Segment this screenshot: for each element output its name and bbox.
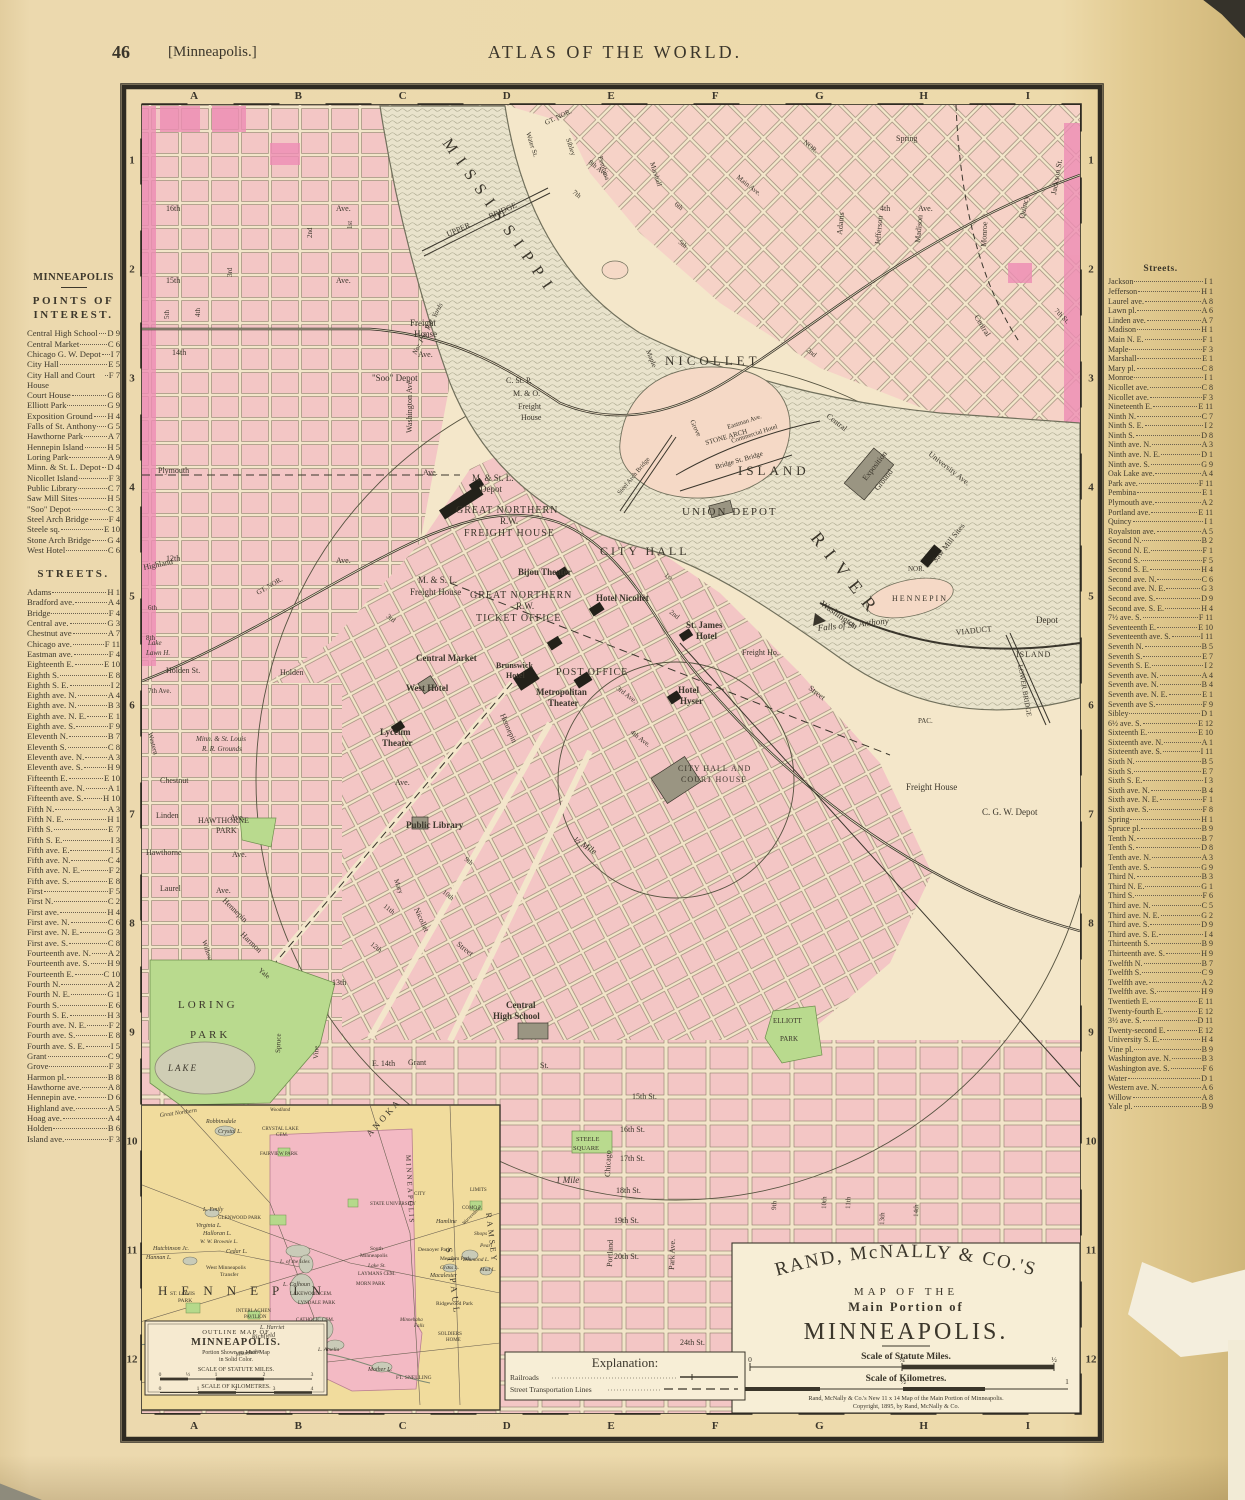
map-label: 13th <box>332 978 346 987</box>
map-label: POST OFFICE <box>556 667 628 678</box>
map-label: Public Library <box>406 820 464 830</box>
index-entry-name: Eleventh N. <box>27 731 68 741</box>
leader-dots <box>69 943 107 944</box>
leader-dots <box>73 633 107 634</box>
index-entry-name: First ave. <box>27 907 59 917</box>
index-entry: Chicago G. W. DepotI 7 <box>27 349 120 359</box>
map-label: TICKET OFFICE <box>476 613 561 624</box>
index-entry-name: Fourth ave. N. E. <box>27 1020 86 1030</box>
inset-label: LAYMANS CEM. <box>358 1272 396 1277</box>
leader-dots <box>60 364 108 365</box>
index-entry: Third N.B 3 <box>1108 872 1213 882</box>
scale-tick-label: 4 <box>311 1386 314 1392</box>
map-label: Washington Ave. <box>405 379 414 433</box>
index-entry: MarshallE 1 <box>1108 354 1213 364</box>
explanation-railroads-label: Railroads <box>510 1373 539 1382</box>
index-entry: Seventh ave. N. E.E 1 <box>1108 690 1213 700</box>
index-entry-name: Harmon pl. <box>27 1072 66 1082</box>
index-entry: Hawthorne ave.A 8 <box>27 1082 120 1092</box>
index-entry-name: Monroe <box>1108 373 1133 383</box>
index-entry: Sixth S. E.I 3 <box>1108 776 1213 786</box>
index-entry: Fourth S.E 6 <box>27 1000 120 1010</box>
index-entry-name: Eighth ave. N. <box>27 690 77 700</box>
index-entry-ref: G 1 <box>1201 882 1213 892</box>
index-entry: MadisonH 1 <box>1108 325 1213 335</box>
map-label: STEELE <box>576 1136 599 1143</box>
leader-dots <box>70 623 107 624</box>
index-entry-ref: E 7 <box>1202 652 1213 662</box>
leader-dots <box>1150 397 1202 398</box>
map-label: 2nd <box>306 227 314 238</box>
leader-dots <box>49 1066 107 1067</box>
index-entry-name: Washington ave. N. <box>1108 1054 1171 1064</box>
index-entry-name: Seventeenth ave. S. <box>1108 632 1171 642</box>
map-label: Monroe <box>979 221 989 247</box>
index-entry-name: Portland ave. <box>1108 508 1150 518</box>
leader-dots <box>1160 675 1201 676</box>
index-entry: Second S. E.H 4 <box>1108 565 1213 575</box>
index-entry-name: Hennepin Island <box>27 442 84 452</box>
leader-dots <box>48 1056 107 1057</box>
index-entry-name: Eighth S. <box>27 670 59 680</box>
index-entry-name: Eighth ave. N. E. <box>27 711 86 721</box>
index-entry-name: Stone Arch Bridge <box>27 535 91 545</box>
index-entry-name: Oak Lake ave. <box>1108 469 1154 479</box>
index-entry-ref: I 11 <box>1201 747 1213 757</box>
map-label: Spring <box>896 134 917 143</box>
index-entry: Lawn pl.A 6 <box>1108 306 1213 316</box>
index-entry-name: Spring <box>1108 815 1129 825</box>
index-entry-ref: A 6 <box>1202 306 1213 316</box>
index-entry-ref: H 5 <box>107 442 120 452</box>
index-entry-ref: I 1 <box>1204 277 1213 287</box>
inset-label: CATHOLIC CEM. <box>296 1318 334 1323</box>
inset-label: W. W. Brownie L. <box>200 1239 238 1245</box>
index-entry-name: Ninth S. <box>1108 431 1135 441</box>
inset-label: L. Calhoun <box>282 1282 310 1288</box>
streets-list-left: AdamsH 1Bradford ave.A 4BridgeF 4Central… <box>27 587 120 1144</box>
index-entry: Fourth N. E.G 1 <box>27 989 120 999</box>
leader-dots <box>1134 771 1201 772</box>
index-entry-ref: F 3 <box>1203 345 1213 355</box>
index-entry-ref: B 3 <box>108 700 120 710</box>
index-entry-name: Fifth ave. S. <box>27 876 69 886</box>
index-entry-name: Third ave. N. E. <box>1108 911 1160 921</box>
index-entry: Seventh ave. N.B 4 <box>1108 680 1213 690</box>
leader-dots <box>1149 982 1201 983</box>
inset-label: SOLDIERS <box>438 1332 462 1337</box>
index-entry-ref: E 1 <box>1202 488 1213 498</box>
leader-dots <box>78 705 107 706</box>
leader-dots <box>70 850 109 851</box>
inset-label: L. Emily <box>202 1207 224 1213</box>
index-entry-ref: F 1 <box>1203 335 1213 345</box>
inset-label: Halloran L. <box>202 1231 231 1237</box>
scale-tick-label: 1 <box>215 1372 218 1378</box>
inset-label: Shops <box>474 1231 487 1237</box>
index-entry: Eighth S.E 8 <box>27 670 120 680</box>
leader-dots <box>84 798 102 799</box>
map-label: Hotel <box>696 631 717 641</box>
index-entry-ref: F 3 <box>109 1134 120 1144</box>
cartouche-line4: MINNEAPOLIS. <box>804 1319 1009 1345</box>
leader-dots <box>91 963 107 964</box>
index-entry: Twenty-fourth E.E 12 <box>1108 1007 1213 1017</box>
inset-label: Ridgewood Park <box>436 1301 473 1307</box>
index-entry-ref: I 11 <box>1201 632 1213 642</box>
scale-tick-label: ¼ <box>899 1355 905 1364</box>
map-label: Theater <box>382 738 413 748</box>
map-label: Linden <box>156 811 179 820</box>
index-entry: Twelfth ave. S.H 9 <box>1108 987 1213 997</box>
grid-letter: G <box>815 1420 824 1432</box>
grid-letter: D <box>503 1420 511 1432</box>
leader-dots <box>1155 502 1200 503</box>
leader-dots <box>1157 991 1200 992</box>
index-entry-name: Third N. <box>1108 872 1136 882</box>
index-entry-ref: D 9 <box>107 328 120 338</box>
grid-number: 9 <box>1088 1027 1094 1039</box>
inset-label: INTERLACHEN <box>236 1309 271 1314</box>
scale-miles-title: Scale of Statute Miles. <box>861 1352 951 1362</box>
leader-dots <box>1142 540 1200 541</box>
index-entry-ref: C 10 <box>104 969 120 979</box>
index-entry: Eastman ave.F 4 <box>27 649 120 659</box>
leader-dots <box>82 1087 106 1088</box>
index-entry: Saw Mill SitesH 5 <box>27 493 120 503</box>
index-entry-ref: I 2 <box>1204 661 1213 671</box>
index-entry-ref: E 1 <box>1202 354 1213 364</box>
leader-dots <box>1145 425 1204 426</box>
index-entry-ref: G 5 <box>107 421 120 431</box>
leader-dots <box>1136 761 1201 762</box>
index-entry: Tenth ave. N.A 3 <box>1108 853 1213 863</box>
index-entry-ref: H 1 <box>1201 287 1213 297</box>
inset-label: Diamond L. <box>462 1257 489 1263</box>
index-entry-ref: G 8 <box>107 390 120 400</box>
leader-dots <box>44 891 108 892</box>
index-entry-name: Vine pl. <box>1108 1045 1133 1055</box>
index-entry: Third ave. S.D 9 <box>1108 920 1213 930</box>
index-entry: Twenty-second E.E 12 <box>1108 1026 1213 1036</box>
index-entry-name: 7½ ave. S. <box>1108 613 1142 623</box>
leader-dots <box>86 1046 110 1047</box>
index-entry-name: Central ave. <box>27 618 69 628</box>
index-entry-ref: B 6 <box>108 1123 120 1133</box>
index-entry-name: Seventeenth E. <box>1108 623 1156 633</box>
index-entry: Steele sq.E 10 <box>27 524 120 534</box>
index-entry-ref: F 4 <box>109 514 120 524</box>
index-entry: Third ave. N. E.G 2 <box>1108 911 1213 921</box>
index-entry: Fourteenth ave. N.A 2 <box>27 948 120 958</box>
cartouche-line3: Main Portion of <box>848 1300 963 1314</box>
index-entry-ref: G 9 <box>1201 460 1213 470</box>
index-entry: City Hall and Court HouseF 7 <box>27 370 120 391</box>
scale-tick-label: ½ <box>186 1371 190 1378</box>
grid-letter: H <box>919 90 928 102</box>
leader-dots <box>1143 780 1203 781</box>
index-entry-ref: F 11 <box>1199 613 1213 623</box>
index-entry: Second S.F 5 <box>1108 556 1213 566</box>
index-entry-ref: E 10 <box>104 773 120 783</box>
map-label: Ave. <box>918 204 933 213</box>
index-entry: Washington ave. N.B 3 <box>1108 1054 1213 1064</box>
index-entry-ref: I 4 <box>1204 930 1213 940</box>
map-label: 1st <box>346 221 354 229</box>
index-entry-name: Chestnut ave <box>27 628 72 638</box>
map-label: FREIGHT HOUSE <box>464 528 555 539</box>
map-label: SQUARE <box>573 1145 599 1152</box>
map-label: 15th St. <box>632 1092 657 1101</box>
inset-label: Desnoyer Park <box>418 1247 451 1253</box>
index-entry-name: Nineteenth E. <box>1108 402 1152 412</box>
index-entry-name: Ninth ave. S. <box>1108 460 1150 470</box>
index-entry-ref: C 9 <box>1202 968 1213 978</box>
leader-dots <box>92 953 107 954</box>
map-label: 17th St. <box>620 1154 645 1163</box>
index-entry-name: Fourteenth ave. S. <box>27 958 90 968</box>
map-label: Ave. <box>336 276 351 285</box>
index-entry: Central ave.G 3 <box>27 618 120 628</box>
leader-dots <box>1141 560 1202 561</box>
leader-dots <box>1157 627 1197 628</box>
map-label: COURT HOUSE <box>681 775 747 784</box>
index-entry: Elliott ParkG 9 <box>27 400 120 410</box>
leader-dots <box>60 675 107 676</box>
index-entry-name: Twentieth E. <box>1108 997 1149 1007</box>
map-label: Hyser <box>680 696 703 706</box>
index-entry: Harmon pl.B 8 <box>27 1072 120 1082</box>
index-entry: Eleventh ave. S.H 9 <box>27 762 120 772</box>
index-entry: Seventh S. E.I 2 <box>1108 661 1213 671</box>
index-entry-ref: C 6 <box>108 917 120 927</box>
map-label: 19th St. <box>614 1216 639 1225</box>
index-entry-ref: H 5 <box>107 493 120 503</box>
index-entry-ref: E 7 <box>1202 767 1213 777</box>
leader-dots <box>1134 281 1203 282</box>
leader-dots <box>54 829 108 830</box>
inset-label: CEM. <box>276 1133 288 1138</box>
index-entry-ref: H 4 <box>1201 565 1213 575</box>
map-label: LORING <box>178 999 238 1011</box>
index-entry: First N.C 2 <box>27 896 120 906</box>
index-entry-ref: C 7 <box>108 483 120 493</box>
index-entry-ref: H 1 <box>107 814 120 824</box>
index-entry: Spruce pl.B 9 <box>1108 824 1213 834</box>
index-entry-name: Sixteenth E. <box>1108 728 1147 738</box>
index-entry-name: Fifth ave. E. <box>27 845 69 855</box>
grid-number: 9 <box>129 1027 135 1039</box>
leader-dots <box>78 695 107 696</box>
leader-dots <box>1138 291 1200 292</box>
map-label: Hotel Nicollet <box>596 593 649 603</box>
index-entry-ref: F 4 <box>109 649 120 659</box>
inset-label: Falls <box>413 1324 424 1329</box>
leader-dots <box>1165 608 1200 609</box>
leader-dots <box>76 726 108 727</box>
index-entry-name: Saw Mill Sites <box>27 493 78 503</box>
inset-label: Hamline <box>435 1219 457 1225</box>
inset-label: Hutchinson Jc. <box>152 1246 189 1252</box>
index-entry-ref: F 5 <box>109 886 120 896</box>
leader-dots <box>1137 876 1201 877</box>
index-entry: Third N. E.G 1 <box>1108 882 1213 892</box>
scale-tick-label: 0 <box>748 1355 752 1364</box>
index-entry-name: Tenth S. <box>1108 843 1135 853</box>
map-label: 20th St. <box>614 1252 639 1261</box>
index-entry: SpringH 1 <box>1108 815 1213 825</box>
leader-dots <box>1145 646 1201 647</box>
leader-dots <box>1144 963 1201 964</box>
index-entry: 3½ ave. S.D 11 <box>1108 1016 1213 1026</box>
index-entry-name: Plymouth ave. <box>1108 498 1154 508</box>
index-entry-name: Fifth ave. N. E. <box>27 865 80 875</box>
index-entry-name: Twelfth N. <box>1108 959 1143 969</box>
map-label: ISLAND <box>738 463 810 478</box>
leader-dots <box>1130 819 1200 820</box>
index-entry-ref: C 6 <box>108 545 120 555</box>
inset-label: West Minneapolis <box>206 1265 246 1271</box>
leader-dots <box>85 447 107 448</box>
leader-dots <box>92 540 106 541</box>
map-label: NICOLLET <box>665 353 761 368</box>
index-entry-ref: G 1 <box>107 989 120 999</box>
map-label: HENNEPIN <box>892 594 948 603</box>
leader-dots <box>1160 1039 1200 1040</box>
scale-tick-label: ½ <box>900 1377 906 1386</box>
index-entry: First ave. S.C 8 <box>27 938 120 948</box>
index-entry: Ninth N.C 7 <box>1108 412 1213 422</box>
index-entry-ref: B 7 <box>108 731 120 741</box>
leader-dots <box>1163 751 1200 752</box>
index-entry: Fifth ave. N. E.F 2 <box>27 865 120 875</box>
index-entry: "Soo" DepotC 3 <box>27 504 120 514</box>
leader-dots <box>102 354 110 355</box>
map-label: 4th <box>194 308 202 317</box>
index-entry-ref: C 5 <box>1202 901 1213 911</box>
index-entry-ref: A 4 <box>108 690 120 700</box>
index-entry-name: Third S. <box>1108 891 1134 901</box>
leader-dots <box>105 375 108 376</box>
index-entry-name: Seventh N. <box>1108 642 1144 652</box>
index-entry: Nicollet ave.C 8 <box>1108 383 1213 393</box>
inset-label: Crystal L. <box>218 1129 242 1135</box>
index-entry: First ave.H 4 <box>27 907 120 917</box>
index-entry-ref: D 11 <box>1198 1016 1213 1026</box>
leader-dots <box>1172 1058 1201 1059</box>
index-entry-ref: E 11 <box>1198 997 1213 1007</box>
index-entry-ref: H 4 <box>1201 604 1213 614</box>
index-entry-name: Park ave. <box>1108 479 1138 489</box>
index-entry-name: Twenty-second E. <box>1108 1026 1166 1036</box>
leader-dots <box>70 881 107 882</box>
map-label: R. R. Grounds <box>201 745 242 753</box>
index-entry-name: Nicollet ave. <box>1108 383 1149 393</box>
leader-dots <box>1135 895 1201 896</box>
leader-dots <box>1137 310 1200 311</box>
index-entry-name: Third ave. S. <box>1108 920 1149 930</box>
leader-dots <box>69 778 103 779</box>
leader-dots <box>1137 492 1201 493</box>
leader-dots <box>72 509 107 510</box>
leader-dots <box>65 1139 108 1140</box>
index-entry: 6½ ave. S.E 12 <box>1108 719 1213 729</box>
leader-dots <box>1153 406 1197 407</box>
grid-letter: A <box>190 1420 198 1432</box>
grid-letter: C <box>399 1420 407 1432</box>
leader-dots <box>63 840 109 841</box>
index-entry: Central High SchoolD 9 <box>27 328 120 338</box>
map-label: PAC. <box>918 717 933 725</box>
index-entry: Sixteenth E.E 10 <box>1108 728 1213 738</box>
index-entry-ref: H 4 <box>107 907 120 917</box>
index-entry-name: Island ave. <box>27 1134 64 1144</box>
leader-dots <box>80 344 107 345</box>
index-entry: Third ave. S. E.I 4 <box>1108 930 1213 940</box>
index-entry-ref: B 7 <box>1202 959 1213 969</box>
grid-number: 2 <box>129 264 135 276</box>
index-entry-name: Sibley <box>1108 709 1128 719</box>
map-label: Ave. <box>232 850 247 859</box>
index-entry-ref: A 2 <box>108 979 120 989</box>
map-label: CITY HALL AND <box>678 764 751 773</box>
index-entry-ref: I 1 <box>1204 373 1213 383</box>
index-entry-ref: E 12 <box>1198 1007 1213 1017</box>
map-label: PARK <box>216 826 237 835</box>
index-entry-name: Royalston ave. <box>1108 527 1156 537</box>
index-entry-name: "Soo" Depot <box>27 504 71 514</box>
leader-dots <box>1171 1068 1202 1069</box>
leader-dots <box>78 1097 107 1098</box>
leader-dots <box>1161 454 1200 455</box>
index-entry-name: 3½ ave. S. <box>1108 1016 1142 1026</box>
leader-dots <box>1161 915 1201 916</box>
grid-number: 4 <box>129 482 135 494</box>
index-entry-name: Eleventh S. <box>27 742 67 752</box>
index-entry-ref: F 7 <box>109 370 120 380</box>
map-label: Depot <box>480 484 502 494</box>
index-entry-name: Loring Park <box>27 452 68 462</box>
poi-heading: POINTS OF INTEREST. <box>27 294 120 324</box>
index-entry-ref: H 1 <box>107 587 120 597</box>
index-entry: Sixth ave. N. E.F 1 <box>1108 795 1213 805</box>
leader-dots <box>70 685 110 686</box>
index-entry-name: Highland ave. <box>27 1103 75 1113</box>
index-entry-ref: D 8 <box>1201 431 1213 441</box>
index-entry-ref: C 6 <box>108 339 120 349</box>
grid-number: 11 <box>1086 1245 1096 1257</box>
map-label: 6th <box>148 604 157 612</box>
index-entry: QuincyI 1 <box>1108 517 1213 527</box>
inset-label: South <box>370 1246 383 1252</box>
index-entry: WaterD 1 <box>1108 1074 1213 1084</box>
index-entry-name: Hawthorne Park <box>27 431 83 441</box>
index-entry-ref: I 3 <box>1204 776 1213 786</box>
index-entry-name: Quincy <box>1108 517 1132 527</box>
index-entry-name: Second S. <box>1108 556 1140 566</box>
index-entry-name: Seventh ave. N. <box>1108 671 1159 681</box>
leader-dots <box>1137 329 1200 330</box>
index-entry-name: Tenth ave. S. <box>1108 863 1150 873</box>
leader-dots <box>60 1005 107 1006</box>
map-label: St. <box>540 1061 549 1070</box>
map-label: Plymouth <box>158 466 189 475</box>
leader-dots <box>79 478 108 479</box>
index-entry-ref: B 3 <box>1202 1054 1213 1064</box>
index-entry-ref: B 2 <box>1202 536 1213 546</box>
index-entry: Eighth ave. N.A 4 <box>27 690 120 700</box>
index-entry: Fifth S. E.I 3 <box>27 835 120 845</box>
